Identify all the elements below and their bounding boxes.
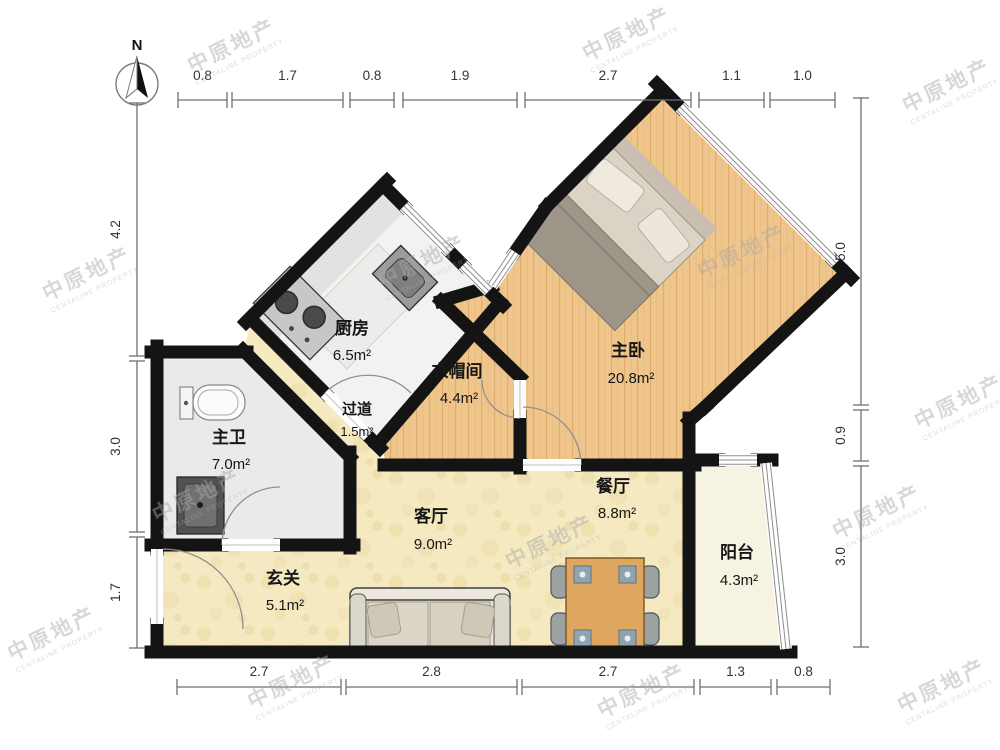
dimension-segment: 4.2 <box>108 103 145 356</box>
dimension-value: 1.0 <box>793 68 812 83</box>
dimension-segment: 1.3 <box>700 664 771 695</box>
dimension-value: 3.0 <box>108 437 123 456</box>
sofa <box>350 588 510 650</box>
room-area-balcony: 4.3m² <box>720 572 758 589</box>
watermark: 中原地产CENTALINE PROPERTY <box>898 54 1000 127</box>
watermark: 中原地产CENTALINE PROPERTY <box>3 602 105 675</box>
dimension-value: 2.8 <box>422 664 441 679</box>
dimension-segment: 1.1 <box>699 68 764 108</box>
dimension-segment: 0.8 <box>350 68 394 108</box>
floor-plan: 厨房 6.5m² 主卧 20.8m² 衣帽间 4.4m² 过道 1.5m² 主卫… <box>0 0 1000 750</box>
dimension-value: 1.7 <box>278 68 297 83</box>
dimension-value: 4.2 <box>108 220 123 239</box>
dimension-segment: 2.8 <box>346 664 517 695</box>
compass-needle-light <box>126 56 137 98</box>
room-area-living: 9.0m² <box>414 536 452 553</box>
dimension-segment: 1.0 <box>770 68 835 108</box>
watermark: 中原地产CENTALINE PROPERTY <box>893 654 995 727</box>
room-area-entry: 5.1m² <box>266 597 304 614</box>
dimension-value: 0.9 <box>833 426 848 445</box>
dimension-value: 0.8 <box>363 68 382 83</box>
room-area-dining: 8.8m² <box>598 505 636 522</box>
room-label-corridor: 过道 <box>342 400 372 418</box>
room-label-bedroom: 主卧 <box>611 340 645 360</box>
window <box>719 456 757 464</box>
dimension-value: 2.7 <box>250 664 269 679</box>
room-label-living: 客厅 <box>413 506 448 526</box>
dimension-value: 1.1 <box>722 68 741 83</box>
room-label-dining: 餐厅 <box>596 476 630 496</box>
north-compass: N <box>116 37 158 105</box>
dimension-segment: 0.8 <box>777 664 830 695</box>
room-label-balcony: 阳台 <box>720 542 754 562</box>
dimension-segment: 1.7 <box>232 68 343 108</box>
watermark: 中原地产CENTALINE PROPERTY <box>578 2 680 75</box>
room-area-corridor: 1.5m² <box>340 424 374 439</box>
dimension-value: 1.3 <box>726 664 745 679</box>
dimension-segment: 1.7 <box>108 537 145 648</box>
dimension-value: 0.8 <box>794 664 813 679</box>
dimension-value: 5.0 <box>833 242 848 261</box>
room-label-cloakroom: 衣帽间 <box>432 361 483 381</box>
room-label-bath: 主卫 <box>212 427 246 447</box>
room-label-kitchen: 厨房 <box>335 318 369 338</box>
room-label-entry: 玄关 <box>266 568 300 588</box>
dining-table-set <box>551 558 659 655</box>
room-area-kitchen: 6.5m² <box>333 347 371 364</box>
dimension-value: 2.7 <box>599 664 618 679</box>
room-area-cloakroom: 4.4m² <box>440 390 478 407</box>
dimension-segment: 0.9 <box>833 410 869 461</box>
dimension-segment: 3.0 <box>108 361 145 532</box>
dimension-segment: 1.9 <box>403 68 517 108</box>
watermark: 中原地产CENTALINE PROPERTY <box>910 370 1000 443</box>
watermark: 中原地产CENTALINE PROPERTY <box>828 480 930 553</box>
watermark: 中原地产CENTALINE PROPERTY <box>38 242 140 315</box>
room-area-bedroom: 20.8m² <box>608 370 655 387</box>
dimension-segment: 3.0 <box>833 466 869 647</box>
floor-plan-canvas: 厨房 6.5m² 主卧 20.8m² 衣帽间 4.4m² 过道 1.5m² 主卫… <box>0 0 1000 750</box>
north-label: N <box>132 37 143 54</box>
toilet <box>180 385 245 420</box>
compass-needle-dark <box>137 56 148 98</box>
watermark: 中原地产CENTALINE PROPERTY <box>243 650 345 723</box>
dimension-value: 1.7 <box>108 583 123 602</box>
dimension-value: 1.9 <box>451 68 470 83</box>
dimension-segment: 5.0 <box>833 98 869 405</box>
